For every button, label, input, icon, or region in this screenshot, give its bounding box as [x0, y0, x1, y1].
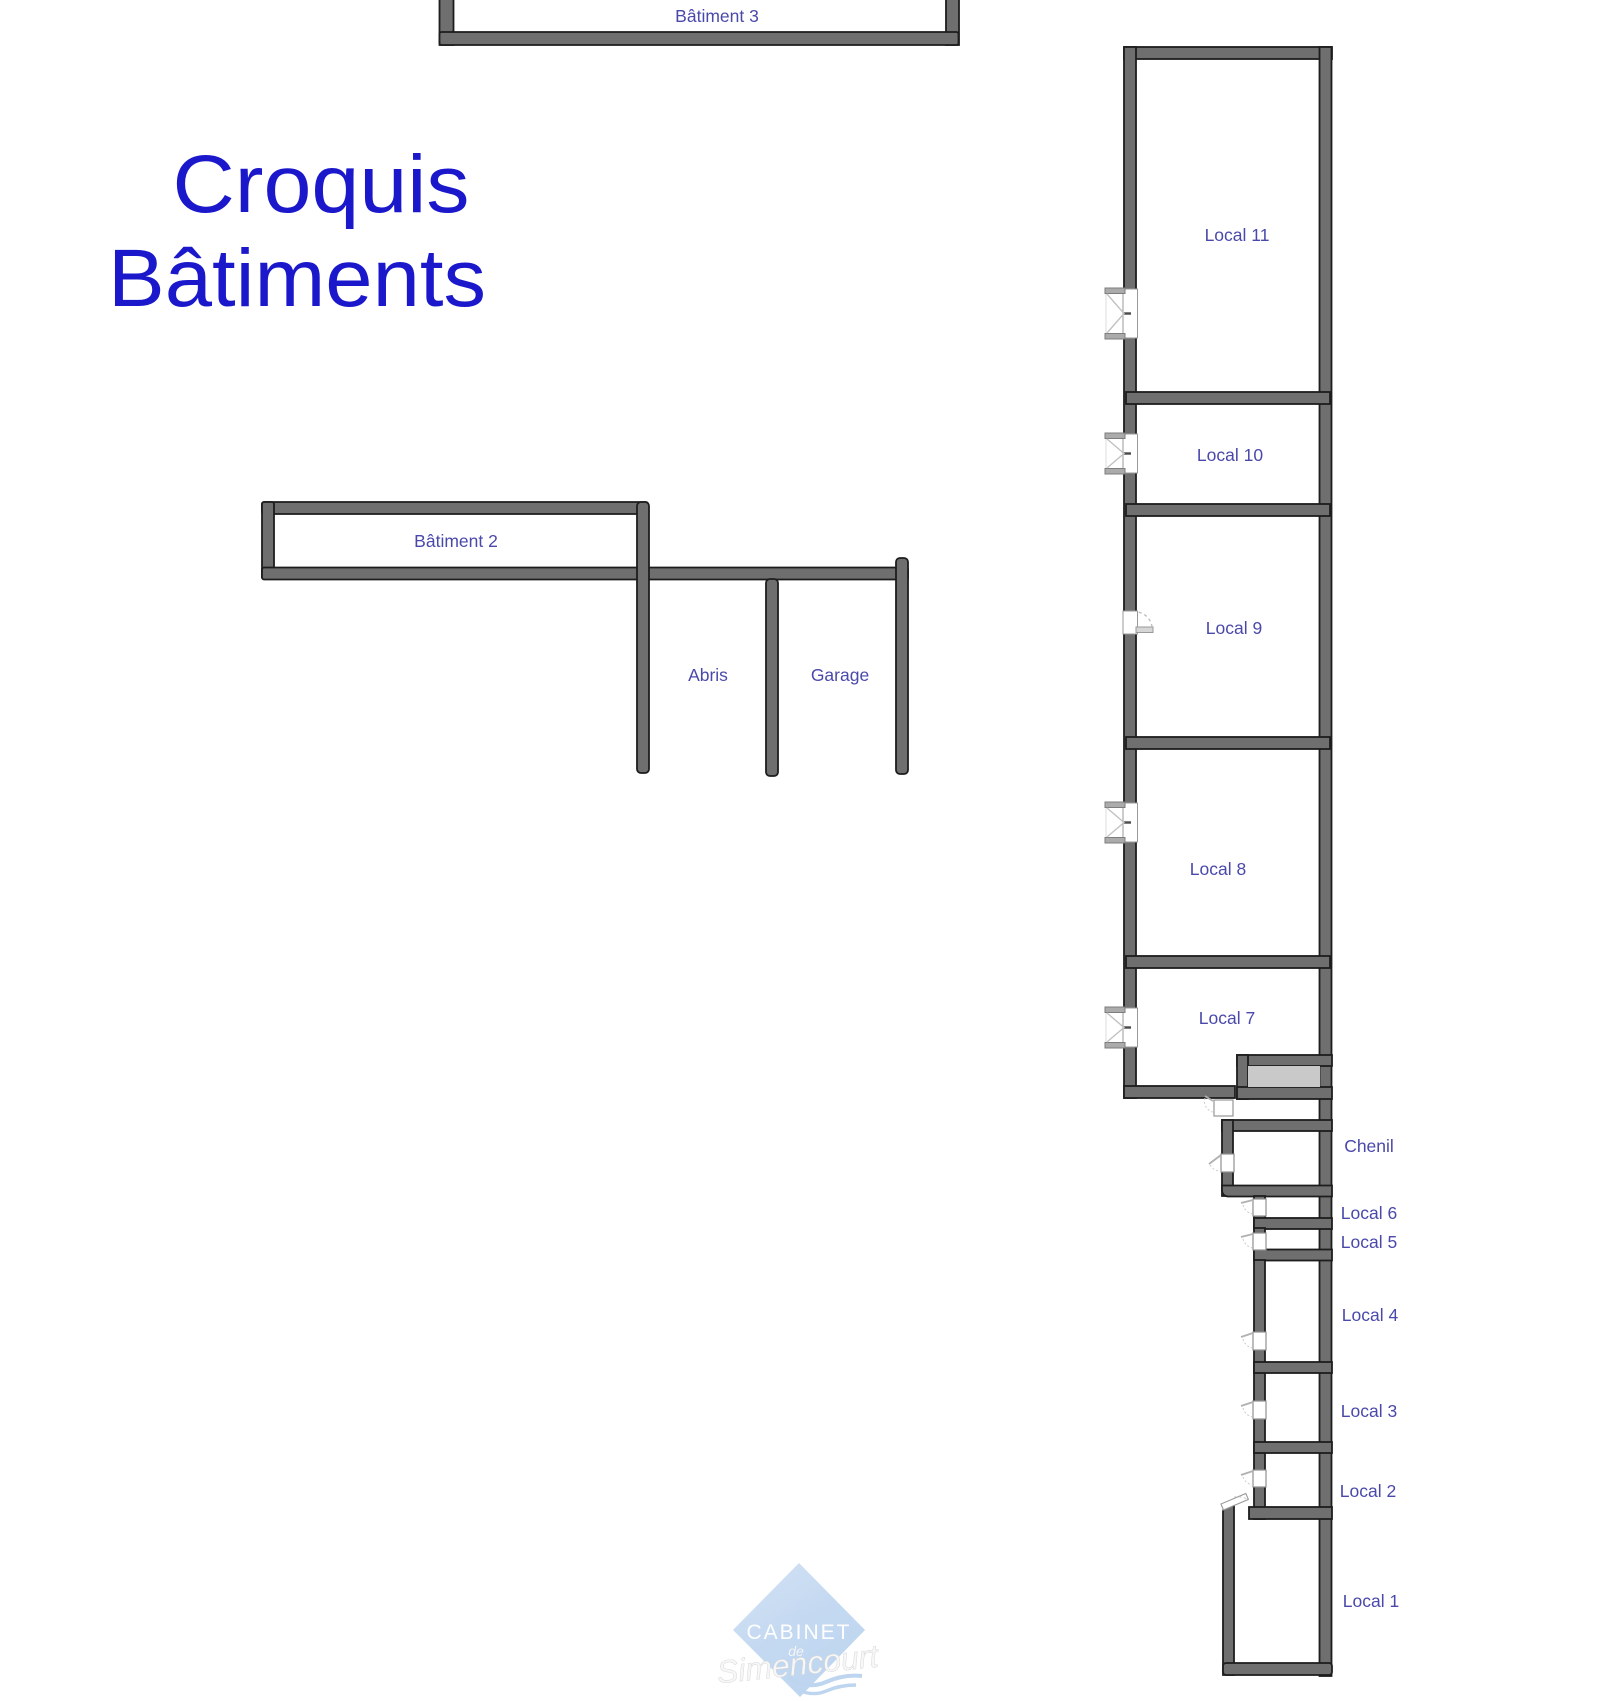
svg-text:Chenil: Chenil [1344, 1136, 1394, 1156]
svg-text:Bâtiment 3: Bâtiment 3 [675, 6, 759, 26]
svg-text:Local 1: Local 1 [1343, 1591, 1399, 1611]
svg-text:Local 5: Local 5 [1341, 1232, 1397, 1252]
svg-text:Croquis: Croquis [173, 139, 470, 230]
svg-text:Local 9: Local 9 [1206, 618, 1262, 638]
svg-text:Local 10: Local 10 [1197, 445, 1263, 465]
svg-text:Garage: Garage [811, 665, 869, 685]
svg-text:Local 2: Local 2 [1340, 1481, 1396, 1501]
svg-text:Local 8: Local 8 [1190, 859, 1246, 879]
svg-text:Local 11: Local 11 [1205, 225, 1270, 245]
svg-text:Local 6: Local 6 [1341, 1203, 1397, 1223]
svg-text:Bâtiment 2: Bâtiment 2 [414, 531, 498, 551]
svg-text:Abris: Abris [688, 665, 728, 685]
svg-text:Bâtiments: Bâtiments [108, 233, 486, 324]
svg-text:CABINET: CABINET [746, 1621, 851, 1644]
svg-text:Local 7: Local 7 [1199, 1008, 1255, 1028]
svg-text:Local 4: Local 4 [1342, 1305, 1399, 1325]
svg-text:Local 3: Local 3 [1341, 1401, 1397, 1421]
